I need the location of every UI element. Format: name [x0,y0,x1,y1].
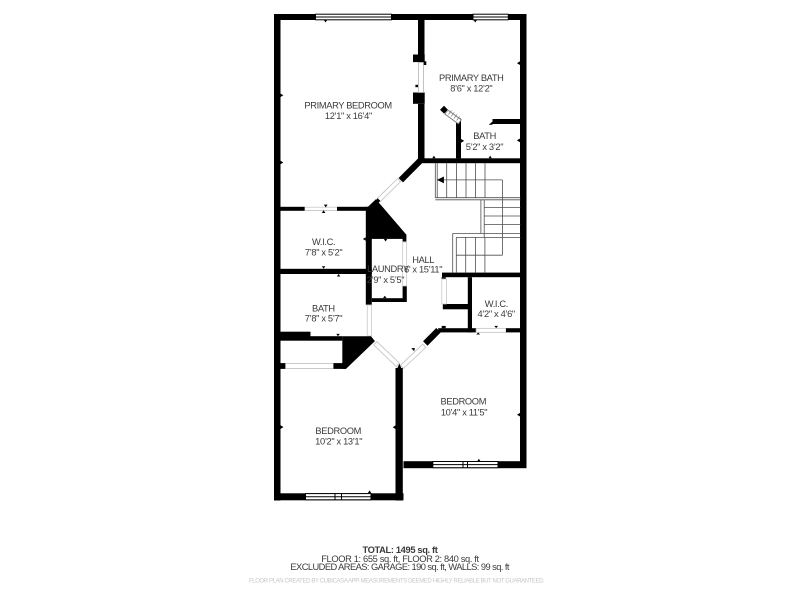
svg-text:10’2" x 13’1": 10’2" x 13’1" [315,437,362,447]
svg-text:BEDROOM: BEDROOM [441,396,487,406]
svg-text:4’2" x 4’6": 4’2" x 4’6" [478,309,515,319]
svg-text:BEDROOM: BEDROOM [315,426,361,436]
svg-text:LAUNDRY: LAUNDRY [367,264,409,274]
svg-text:W.I.C.: W.I.C. [312,237,335,247]
svg-text:BATH: BATH [473,131,496,141]
svg-text:2’9" x 5’5": 2’9" x 5’5" [367,275,404,285]
svg-text:7’8" x 5’2": 7’8" x 5’2" [305,248,342,258]
svg-text:HALL: HALL [412,255,434,265]
svg-text:PRIMARY BATH: PRIMARY BATH [439,73,504,83]
svg-text:6’ x 15’11": 6’ x 15’11" [404,265,442,275]
svg-text:8’6" x 12’2": 8’6" x 12’2" [450,83,492,93]
svg-text:5’2" x 3’2": 5’2" x 3’2" [466,142,503,152]
svg-text:10’4" x 11’5": 10’4" x 11’5" [441,407,487,417]
svg-text:PRIMARY BEDROOM: PRIMARY BEDROOM [304,100,391,110]
svg-text:FLOOR PLAN CREATED BY CUBICASA: FLOOR PLAN CREATED BY CUBICASA APP. MEAS… [249,578,545,584]
svg-text:7’8" x 5’7": 7’8" x 5’7" [305,313,342,323]
svg-text:W.I.C.: W.I.C. [485,299,508,309]
svg-text:BATH: BATH [312,303,335,313]
svg-text:12’1" x 16’4": 12’1" x 16’4" [325,111,372,121]
svg-text:EXCLUDED AREAS: GARAGE: 190 sq: EXCLUDED AREAS: GARAGE: 190 sq. ft, WALL… [290,562,510,572]
